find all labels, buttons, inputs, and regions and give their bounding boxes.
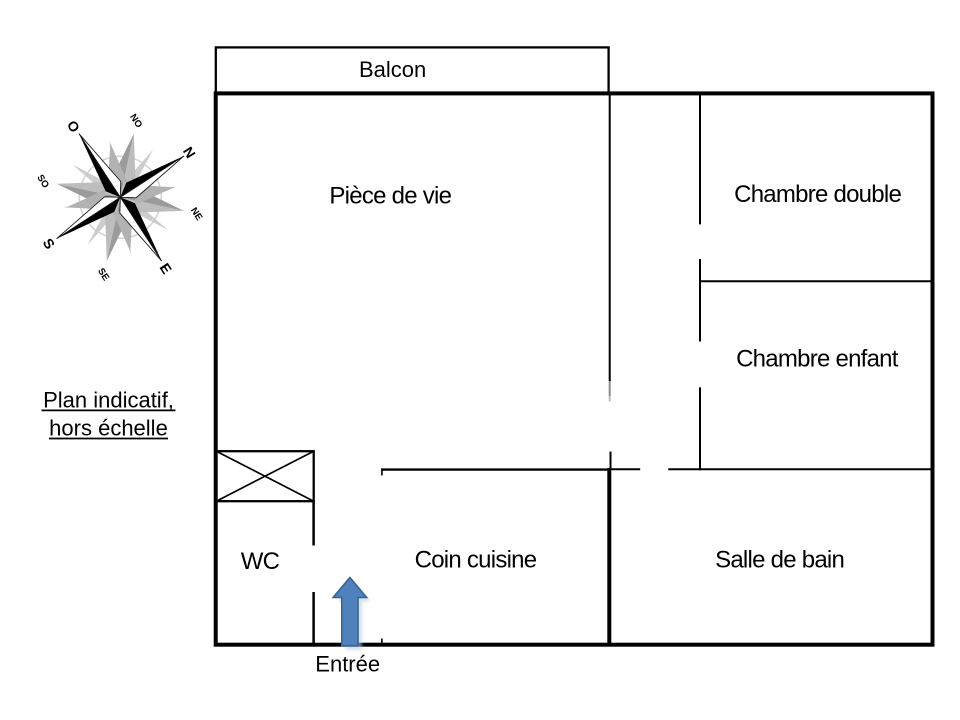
svg-text:hors échelle: hors échelle — [49, 416, 168, 441]
svg-text:Balcon: Balcon — [359, 57, 426, 82]
svg-text:Pièce de vie: Pièce de vie — [329, 182, 451, 209]
svg-text:Plan indicatif,: Plan indicatif, — [43, 388, 174, 413]
svg-text:Chambre double: Chambre double — [734, 181, 901, 208]
svg-text:NE: NE — [188, 206, 204, 223]
svg-text:O: O — [64, 117, 83, 135]
svg-text:Entrée: Entrée — [315, 651, 380, 676]
svg-text:Chambre enfant: Chambre enfant — [736, 346, 899, 373]
svg-text:N: N — [180, 144, 199, 161]
svg-text:NO: NO — [127, 112, 144, 130]
svg-text:SE: SE — [95, 266, 111, 283]
svg-text:Salle de bain: Salle de bain — [715, 547, 844, 574]
svg-text:WC: WC — [241, 548, 280, 575]
svg-text:S: S — [40, 235, 59, 252]
svg-text:E: E — [157, 260, 176, 277]
svg-text:Coin cuisine: Coin cuisine — [415, 547, 537, 574]
svg-text:SO: SO — [34, 173, 51, 191]
